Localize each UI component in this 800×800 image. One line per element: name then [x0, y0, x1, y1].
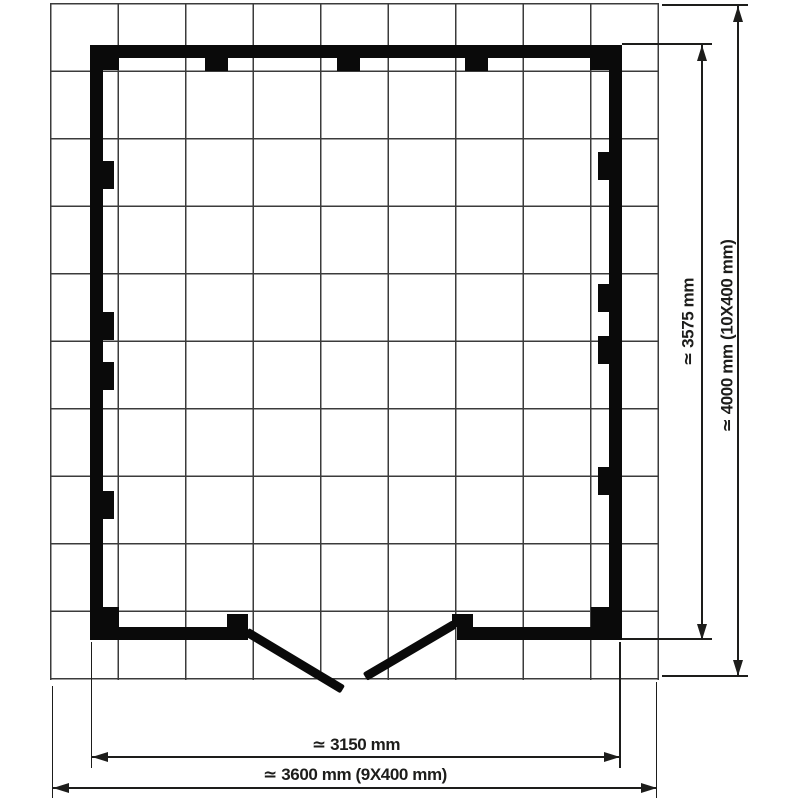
dim-label-outer-width: ≃ 3600 mm (9X400 mm)	[53, 766, 657, 783]
wall-left	[90, 45, 103, 640]
dimension-line	[92, 756, 620, 758]
wall-top	[90, 45, 622, 58]
corner-joint-top-left	[103, 58, 119, 70]
arrowhead-left-icon	[53, 783, 69, 793]
arrowhead-down-icon	[697, 624, 707, 640]
arrowhead-up-icon	[697, 45, 707, 61]
wall-tab-right-3	[598, 336, 609, 364]
arrowhead-left-icon	[92, 752, 108, 762]
wall-tab-right-4	[598, 467, 609, 495]
corner-joint-top-right	[590, 58, 609, 70]
wall-tab-right-2	[598, 284, 609, 312]
wall-bottom-left	[90, 627, 248, 640]
wall-tab-right-1	[598, 152, 609, 180]
arrowhead-down-icon	[733, 660, 743, 676]
wall-tab-top-2	[337, 58, 360, 71]
arrowhead-right-icon	[641, 783, 657, 793]
dimension-line	[737, 6, 739, 676]
wall-right	[609, 45, 622, 640]
dim-label-inner-height: ≃ 3575 mm	[680, 278, 697, 366]
wall-tab-left-2	[103, 312, 114, 340]
floor-plan-canvas: ≃ 3575 mm ≃ 4000 mm (10X400 mm) ≃ 3150 m…	[0, 0, 800, 800]
dimension-line	[53, 787, 657, 789]
dimension-line	[701, 45, 703, 640]
dim-label-inner-width: ≃ 3150 mm	[92, 736, 620, 753]
wall-tab-left-4	[103, 491, 114, 519]
corner-joint-bottom-left	[103, 607, 119, 627]
corner-joint-bottom-right	[591, 607, 609, 627]
dim-label-outer-height: ≃ 4000 mm (10X400 mm)	[719, 240, 736, 433]
wall-tab-left-1	[103, 161, 114, 189]
wall-tab-door-jamb-left	[227, 614, 248, 627]
wall-tab-left-3	[103, 362, 114, 390]
wall-tab-top-1	[205, 58, 228, 71]
arrowhead-right-icon	[604, 752, 620, 762]
grid-paper	[50, 3, 659, 680]
wall-bottom-right	[457, 627, 622, 640]
arrowhead-up-icon	[733, 6, 743, 22]
wall-tab-top-3	[465, 58, 488, 71]
